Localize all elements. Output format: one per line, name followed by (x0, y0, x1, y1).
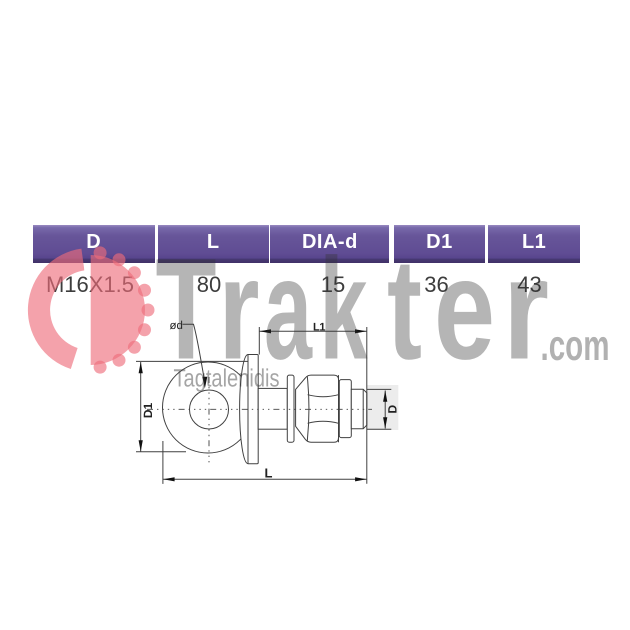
svg-text:Tagtalenidis: Tagtalenidis (174, 364, 280, 392)
svg-text:.com: .com (541, 322, 610, 370)
svg-text:D1: D1 (141, 403, 155, 419)
svg-text:D: D (386, 405, 400, 414)
svg-text:k: k (320, 229, 369, 390)
svg-text:t: t (387, 229, 422, 390)
svg-text:L: L (265, 465, 273, 480)
svg-text:e: e (434, 229, 495, 390)
